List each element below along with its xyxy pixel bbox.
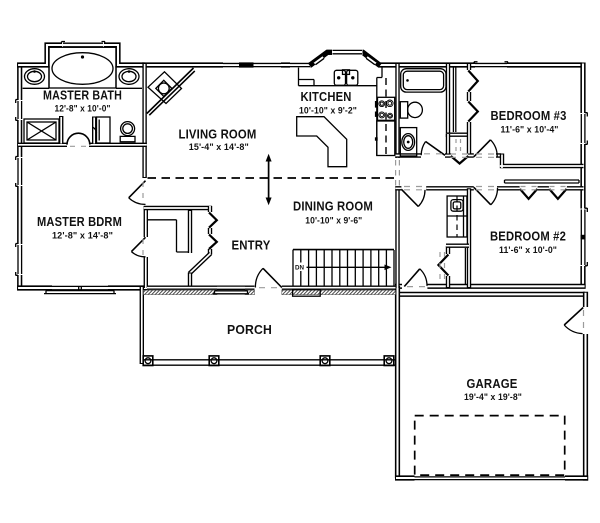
svg-text:BEDROOM #3: BEDROOM #3 <box>491 108 567 123</box>
svg-text:MASTER BATH: MASTER BATH <box>43 88 122 103</box>
svg-text:10'-10" x 9'-2": 10'-10" x 9'-2" <box>299 106 357 117</box>
svg-text:DN: DN <box>295 265 304 272</box>
svg-text:ENTRY: ENTRY <box>232 238 271 253</box>
svg-text:12'-8" x 10'-0": 12'-8" x 10'-0" <box>55 104 111 115</box>
svg-text:DINING ROOM: DINING ROOM <box>293 199 373 214</box>
svg-text:KITCHEN: KITCHEN <box>301 89 352 104</box>
svg-text:11'-6" x 10'-4": 11'-6" x 10'-4" <box>501 125 559 136</box>
svg-text:PORCH: PORCH <box>227 322 272 337</box>
svg-text:10'-10" x 9'-6": 10'-10" x 9'-6" <box>305 216 362 227</box>
svg-text:15'-4" x 14'-8": 15'-4" x 14'-8" <box>189 142 249 153</box>
svg-text:MASTER BDRM: MASTER BDRM <box>37 214 122 229</box>
svg-text:BEDROOM #2: BEDROOM #2 <box>490 229 566 244</box>
svg-text:12'-8" x 14'-8": 12'-8" x 14'-8" <box>52 231 113 242</box>
svg-text:GARAGE: GARAGE <box>467 376 518 391</box>
svg-text:11'-6" x 10'-0": 11'-6" x 10'-0" <box>499 245 557 256</box>
svg-text:LIVING ROOM: LIVING ROOM <box>179 127 257 142</box>
svg-text:19'-4" x 19'-8": 19'-4" x 19'-8" <box>464 392 522 403</box>
